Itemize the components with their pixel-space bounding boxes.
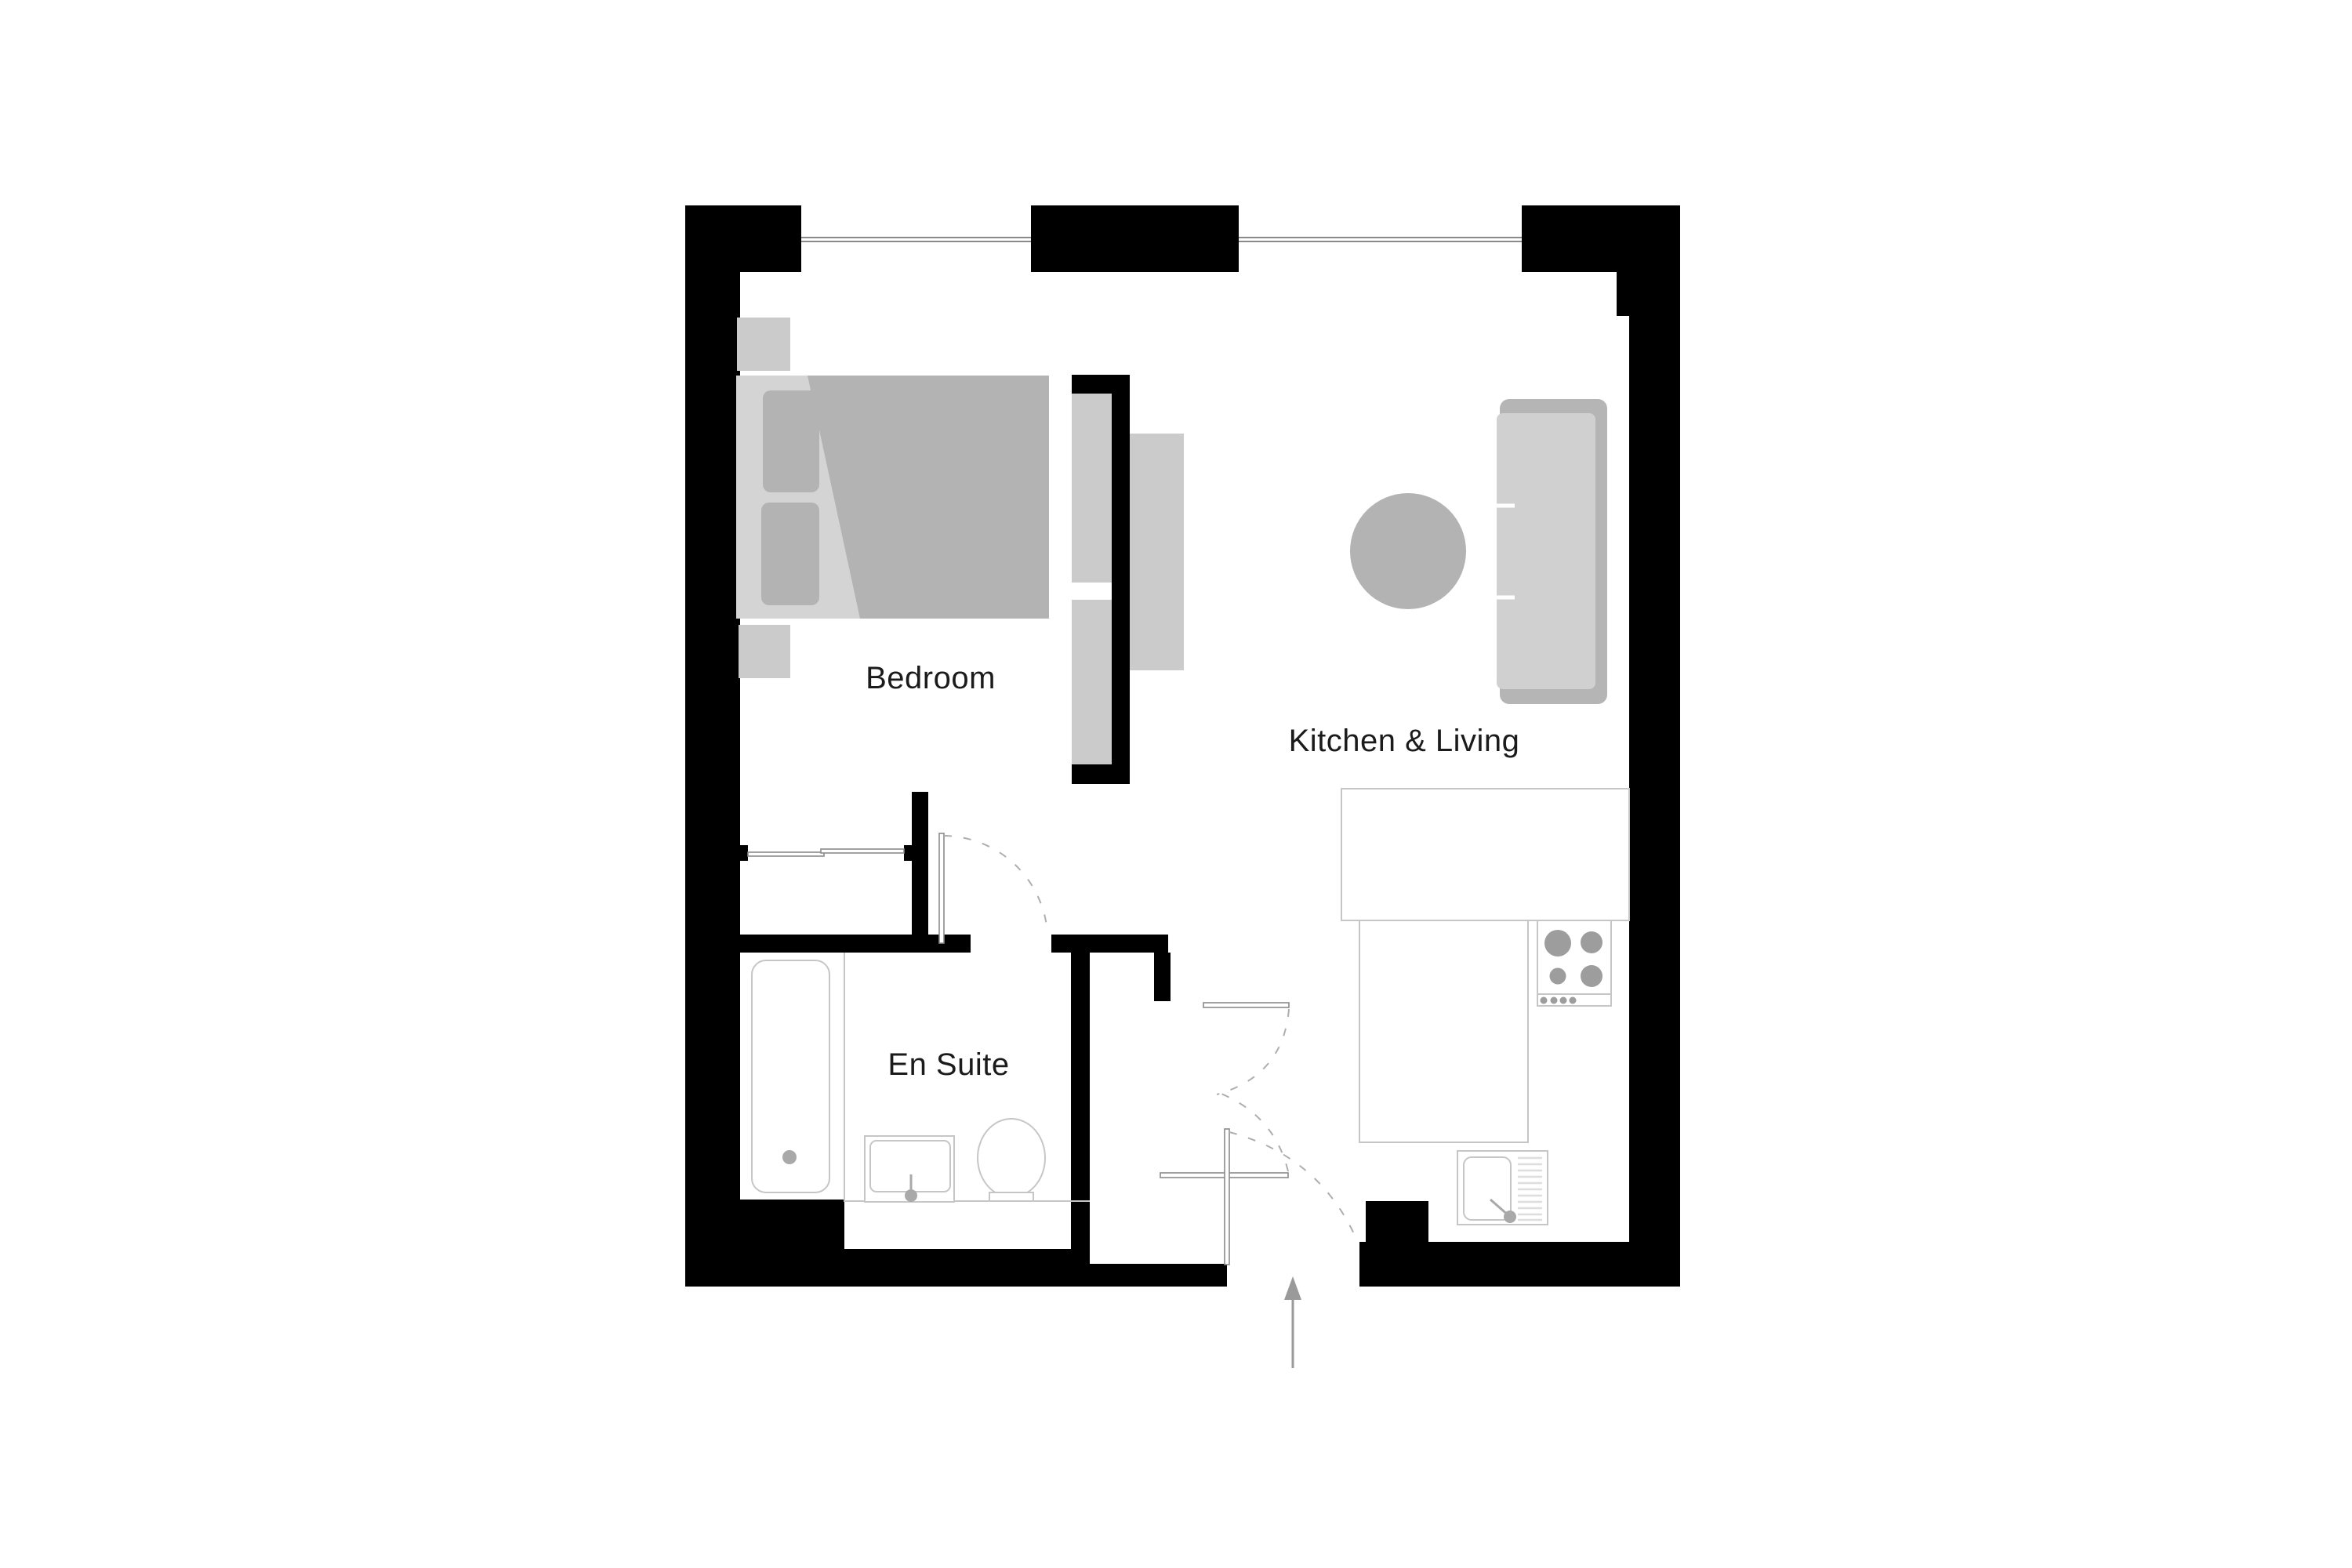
wall-ensuite-top-left <box>685 935 971 953</box>
wall-hall-block <box>1154 953 1171 1001</box>
hob-knob-1 <box>1541 997 1548 1004</box>
kitchen <box>1341 789 1629 1225</box>
entry-arrow <box>1284 1276 1301 1368</box>
wall-bottom-ensuite <box>844 1249 1090 1287</box>
floorplan-canvas: Bedroom Kitchen & Living En Suite <box>0 0 2352 1568</box>
hob-burner-small <box>1550 968 1566 985</box>
toilet-bowl <box>978 1119 1045 1197</box>
wall-right <box>1629 316 1680 1287</box>
sofa-seat <box>1497 413 1595 689</box>
wall-bottom-hall-lip <box>1090 1264 1227 1287</box>
partition-shelf-upper <box>1072 394 1112 583</box>
hob <box>1537 920 1611 1006</box>
wall-top-right-step <box>1617 272 1680 316</box>
nightstand-bottom <box>739 625 790 678</box>
nightstand-top <box>737 318 790 371</box>
hob-burner-medium-bottom <box>1581 965 1602 987</box>
partition-rail <box>1112 375 1130 784</box>
basin-tap <box>905 1189 917 1202</box>
partition-cap-bottom <box>1072 764 1130 784</box>
wall-top-middle-block <box>1031 205 1239 272</box>
bed-pillow-top <box>763 390 819 492</box>
hob-burner-large <box>1544 930 1571 956</box>
toilet-base <box>989 1192 1033 1201</box>
wall-top-right-block <box>1522 205 1680 272</box>
kitchen-counter-lower <box>1359 920 1528 1142</box>
wall-bedroom-hall <box>912 792 928 935</box>
entry-door-leaf <box>1225 1129 1229 1265</box>
closet-sliding-door-left <box>748 852 824 856</box>
ensuite-door-arc <box>944 836 1047 933</box>
sink-tap <box>1504 1210 1516 1223</box>
ensuite-door-leaf <box>939 833 944 943</box>
room-label-kitchen-living: Kitchen & Living <box>1289 724 1520 758</box>
coffee-table <box>1350 493 1466 609</box>
hob-knob-4 <box>1570 997 1577 1004</box>
closet-sliding-door-right <box>821 849 904 853</box>
wall-ensuite-hall <box>1071 953 1090 1249</box>
hob-knob-2 <box>1551 997 1558 1004</box>
bathtub-drain <box>782 1150 797 1164</box>
wall-entry-stub <box>1366 1201 1428 1242</box>
wall-bottom-right <box>1359 1242 1680 1287</box>
room-label-bedroom: Bedroom <box>866 661 996 695</box>
entry-arrow-head <box>1284 1276 1301 1300</box>
wall-ensuite-top-right <box>1051 935 1168 953</box>
wall-left <box>685 205 740 1208</box>
wall-closet-tab-left <box>737 845 748 861</box>
walls <box>685 205 1680 1287</box>
wall-bottom-left-mass <box>685 1200 844 1287</box>
hob-burner-medium-top <box>1581 931 1602 953</box>
kitchen-counter-upper <box>1341 789 1629 920</box>
room-label-en-suite: En Suite <box>887 1047 1009 1082</box>
entry-door-arc <box>1229 1132 1356 1239</box>
hob-knob-3 <box>1560 997 1567 1004</box>
living-furniture <box>1350 399 1607 704</box>
tv-panel <box>1130 434 1184 670</box>
hall-door-upper-leaf <box>1203 1003 1289 1007</box>
wall-closet-tab-right <box>904 845 912 861</box>
bed-pillow-bottom <box>761 503 819 605</box>
hall-door-upper-arc <box>1217 1009 1289 1094</box>
partition-shelf-lower <box>1072 600 1112 764</box>
